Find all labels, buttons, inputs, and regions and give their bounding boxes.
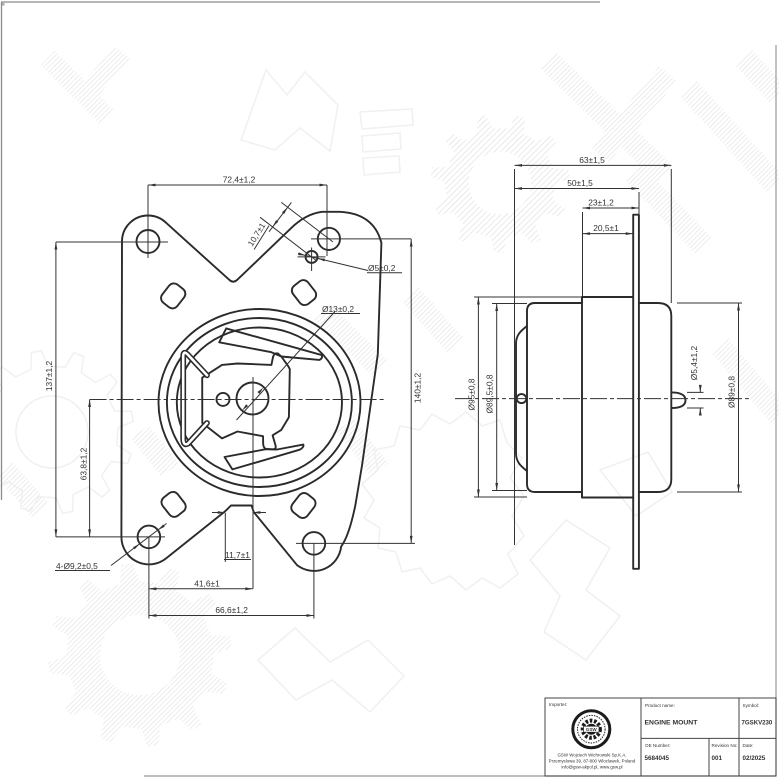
svg-text:140±1,2: 140±1,2	[413, 373, 423, 404]
svg-text:Ø5,4±1,2: Ø5,4±1,2	[689, 345, 699, 380]
svg-text:Ø13±0,2: Ø13±0,2	[322, 304, 354, 314]
svg-text:Date:: Date:	[743, 743, 754, 748]
svg-text:41,6±1: 41,6±1	[194, 578, 220, 588]
svg-text:02/2025: 02/2025	[743, 755, 766, 762]
svg-text:Product name:: Product name:	[645, 703, 675, 708]
svg-text:Symbol:: Symbol:	[743, 703, 760, 708]
svg-text:Ø89,5±0,8: Ø89,5±0,8	[485, 374, 495, 413]
svg-text:50±1,5: 50±1,5	[567, 178, 593, 188]
svg-text:Ø89±0,8: Ø89±0,8	[727, 376, 737, 408]
svg-text:info@gsw-akpol.pl, www.gsw.pl: info@gsw-akpol.pl, www.gsw.pl	[561, 765, 622, 770]
svg-text:Ø5±0,2: Ø5±0,2	[368, 263, 396, 273]
svg-text:66,6±1,2: 66,6±1,2	[215, 605, 248, 615]
svg-text:Importer:: Importer:	[549, 702, 567, 707]
svg-text:63,8±1,2: 63,8±1,2	[79, 447, 89, 480]
svg-text:GSW: GSW	[586, 727, 598, 732]
svg-text:7GSKV230: 7GSKV230	[742, 720, 773, 727]
svg-text:GSW Wojciech Wichrowski Sp.K.A: GSW Wojciech Wichrowski Sp.K.A.	[558, 753, 627, 758]
svg-text:10,7±1: 10,7±1	[245, 221, 267, 248]
svg-text:20,5±1: 20,5±1	[593, 223, 619, 233]
svg-text:11,7±1: 11,7±1	[225, 550, 250, 560]
svg-text:63±1,5: 63±1,5	[579, 155, 605, 165]
svg-text:Ø95±0,8: Ø95±0,8	[467, 378, 477, 410]
svg-text:Revision No:: Revision No:	[712, 743, 738, 748]
svg-text:72,4±1,2: 72,4±1,2	[223, 175, 256, 185]
svg-text:23±1,2: 23±1,2	[588, 198, 614, 208]
svg-text:Przemyslowa 39, 87-800 Wloclaw: Przemyslowa 39, 87-800 Wloclawek, Poland	[549, 759, 636, 764]
svg-text:ENGINE MOUNT: ENGINE MOUNT	[645, 720, 699, 727]
svg-text:5684045: 5684045	[645, 755, 670, 762]
svg-text:001: 001	[712, 755, 723, 762]
svg-text:OE Number:: OE Number:	[645, 743, 671, 748]
svg-text:137±1,2: 137±1,2	[44, 361, 54, 392]
svg-text:4-Ø9,2±0,5: 4-Ø9,2±0,5	[56, 561, 98, 571]
